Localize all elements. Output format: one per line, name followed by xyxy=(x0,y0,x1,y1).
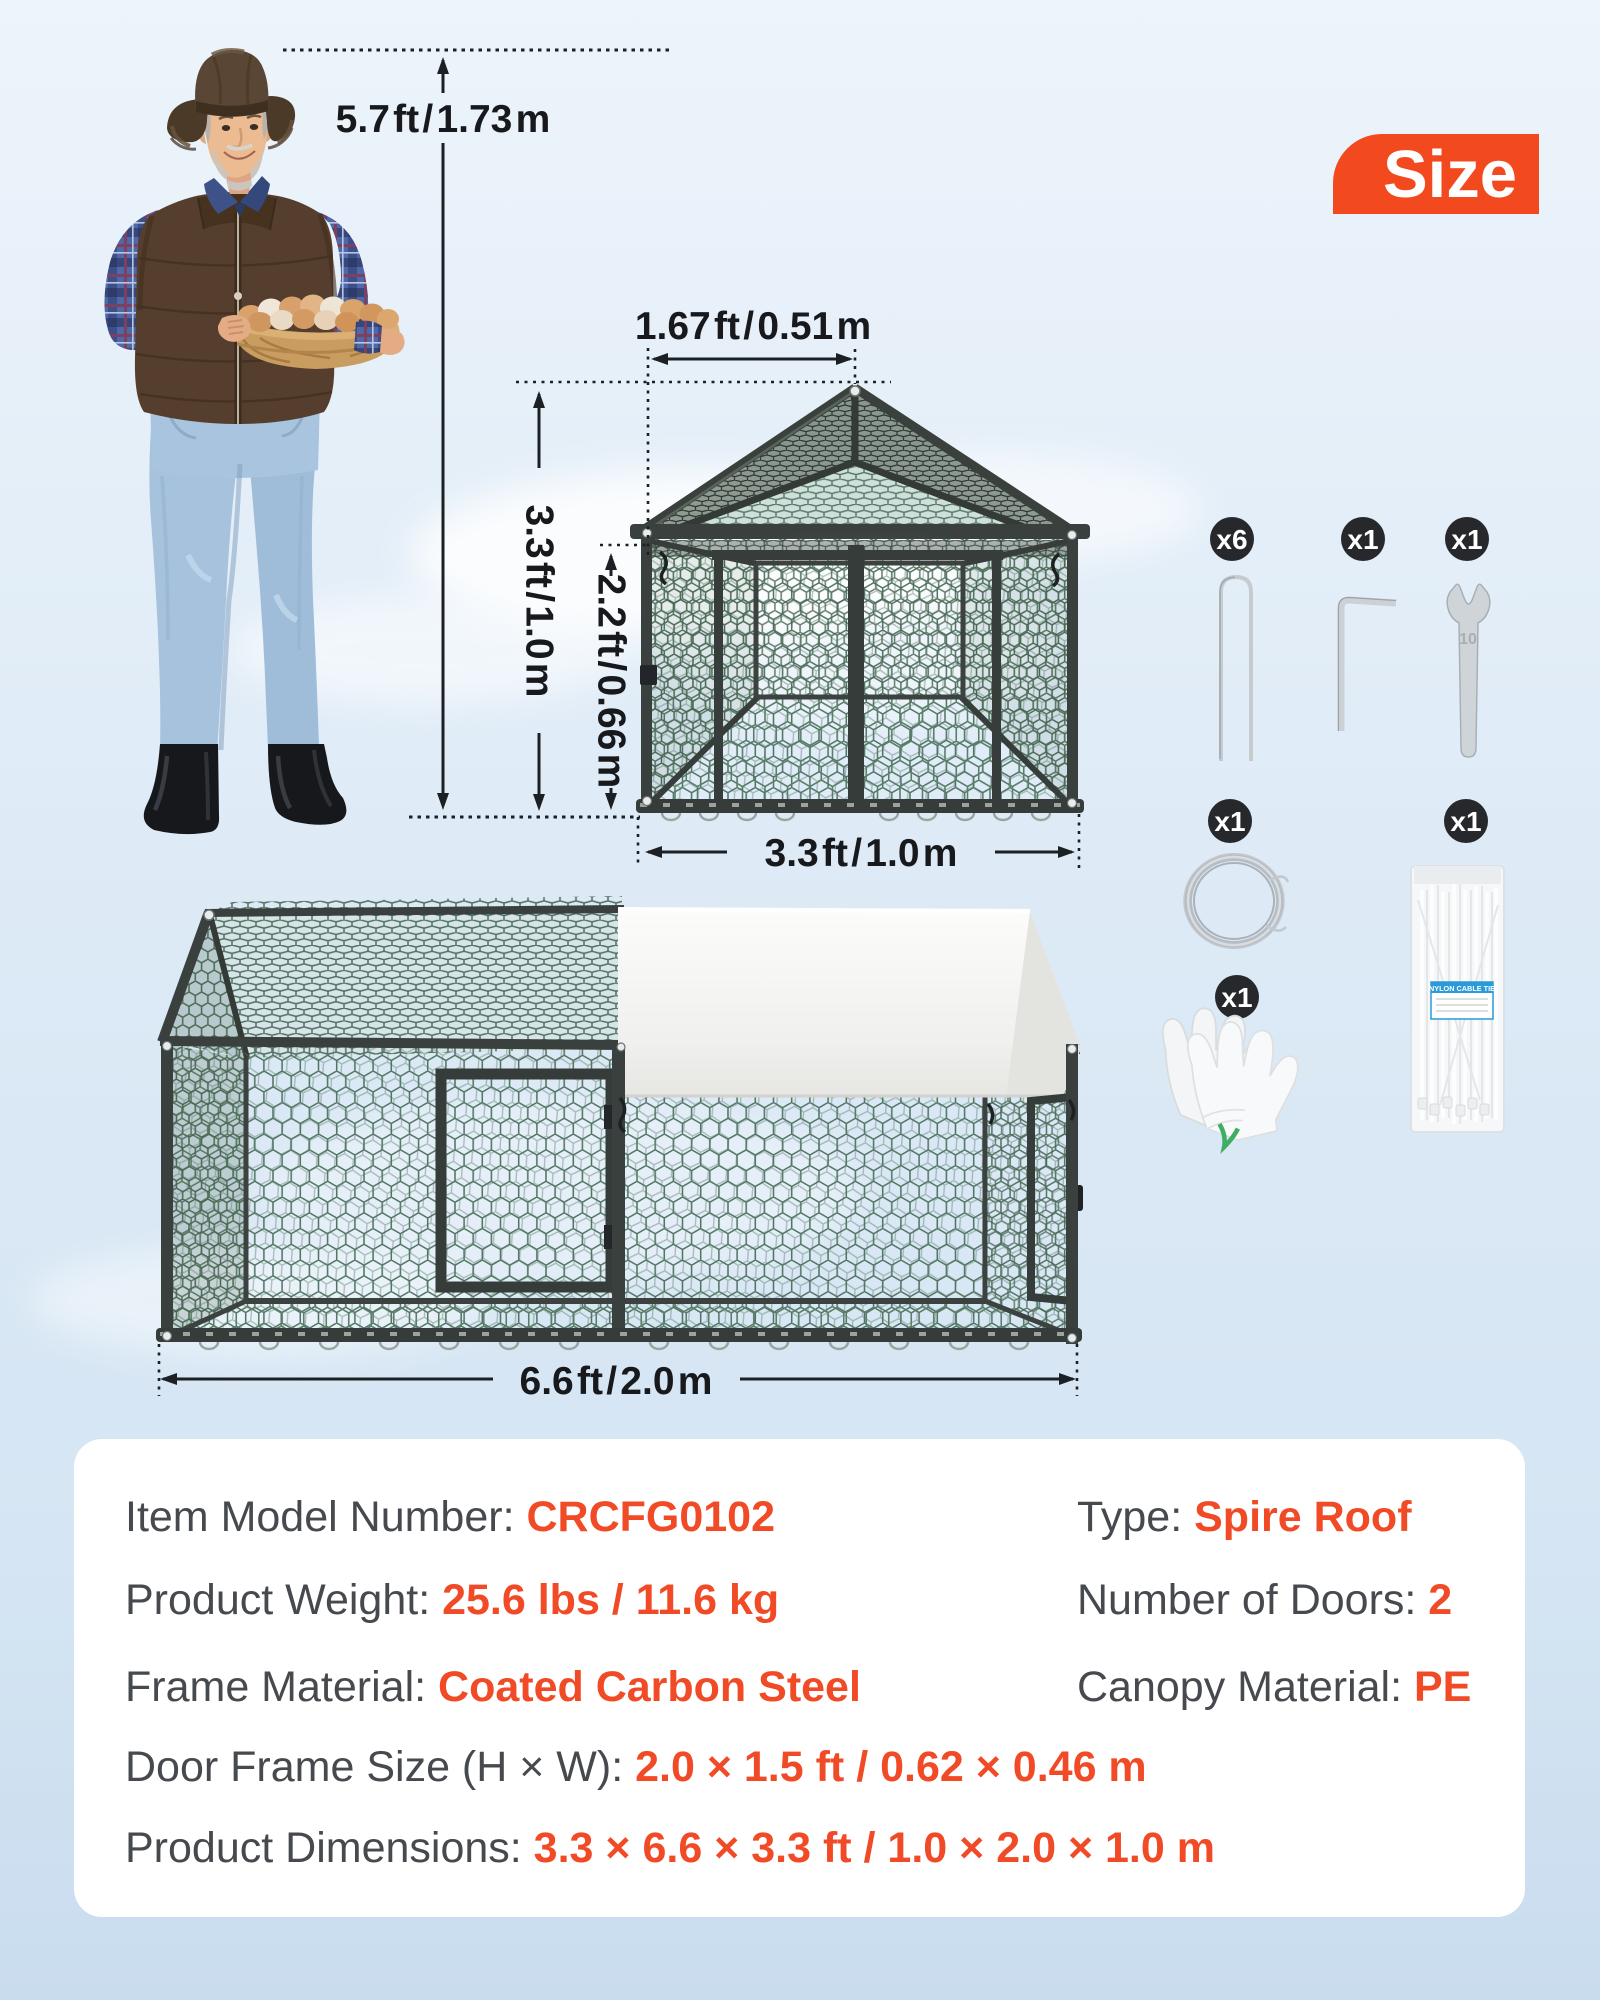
svg-text:x1: x1 xyxy=(1347,524,1378,555)
svg-text:NYLON CABLE TIE: NYLON CABLE TIE xyxy=(1429,984,1495,993)
svg-text:Type: Spire Roof: Type: Spire Roof xyxy=(1077,1493,1412,1541)
svg-text:x1: x1 xyxy=(1450,806,1481,837)
svg-text:x1: x1 xyxy=(1214,806,1245,837)
svg-text:5.7 ft / 1.73 m: 5.7 ft / 1.73 m xyxy=(336,98,551,141)
svg-text:x6: x6 xyxy=(1216,524,1247,555)
svg-text:Frame Material: Coated Carbon: Frame Material: Coated Carbon Steel xyxy=(125,1663,861,1711)
svg-text:3.3 ft / 1.0 m: 3.3 ft / 1.0 m xyxy=(518,505,561,698)
svg-text:Canopy Material: PE: Canopy Material: PE xyxy=(1077,1663,1471,1711)
svg-text:x1: x1 xyxy=(1451,524,1482,555)
svg-text:Product Weight: 25.6 lbs / 11.: Product Weight: 25.6 lbs / 11.6 kg xyxy=(125,1576,779,1624)
svg-text:1.67 ft / 0.51 m: 1.67 ft / 0.51 m xyxy=(635,305,871,348)
svg-text:3.3 ft / 1.0 m: 3.3 ft / 1.0 m xyxy=(765,832,958,875)
svg-text:x1: x1 xyxy=(1221,982,1252,1013)
svg-text:10: 10 xyxy=(1459,631,1477,648)
svg-text:Door Frame Size (H × W): 2.0 ×: Door Frame Size (H × W): 2.0 × 1.5 ft / … xyxy=(125,1743,1147,1791)
svg-text:Size: Size xyxy=(1383,137,1517,212)
svg-text:Product Dimensions: 3.3 × 6.6: Product Dimensions: 3.3 × 6.6 × 3.3 ft /… xyxy=(125,1824,1215,1872)
svg-text:6.6 ft / 2.0 m: 6.6 ft / 2.0 m xyxy=(520,1360,713,1403)
svg-text:Item Model Number: CRCFG0102: Item Model Number: CRCFG0102 xyxy=(125,1493,775,1541)
svg-text:2.2 ft / 0.66 m: 2.2 ft / 0.66 m xyxy=(590,574,633,789)
svg-text:Number of Doors: 2: Number of Doors: 2 xyxy=(1077,1576,1452,1624)
